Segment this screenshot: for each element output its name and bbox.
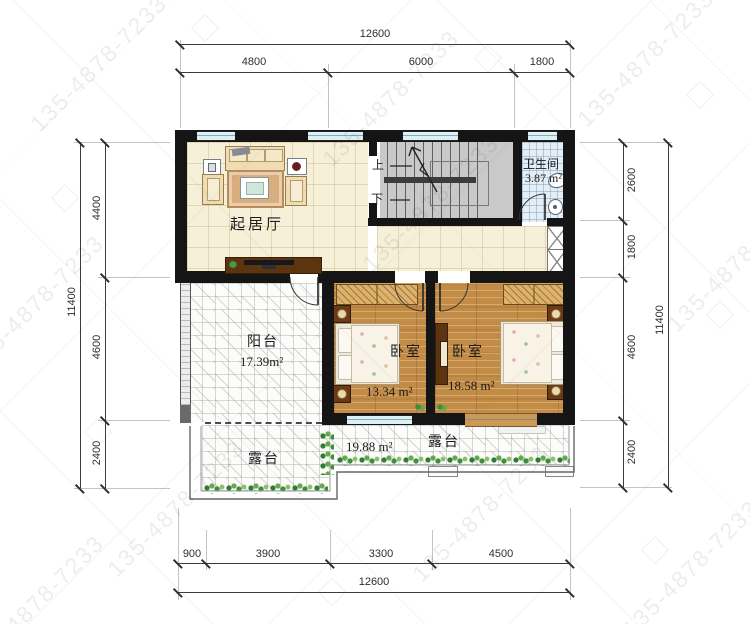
- dim-bottom-segment-0: 900: [162, 548, 222, 560]
- extension-line: [98, 420, 170, 421]
- flower-table-right: [287, 158, 307, 175]
- dimension-line-bottom-segments: [178, 563, 570, 564]
- terrace-door-step: [498, 426, 546, 434]
- bedroom-left-label: 卧室: [390, 341, 422, 361]
- dim-right-segment-2: 4600: [626, 317, 638, 377]
- terrace-left-label: 露台: [248, 448, 280, 468]
- armchair-cushion: [207, 178, 220, 201]
- dim-top-segment-1: 6000: [381, 56, 461, 68]
- window-living-left: [197, 131, 235, 141]
- tv-cabinet: [225, 257, 322, 274]
- plant: [415, 403, 425, 412]
- stairs-handrail: [384, 177, 476, 183]
- shrub-row: [337, 455, 570, 466]
- dim-right-segment-1: 1800: [626, 217, 638, 277]
- dim-left-segment-1: 4600: [91, 317, 103, 377]
- wall-between-bedrooms: [426, 283, 435, 413]
- watermark-text: 135-4878-7233: [662, 190, 750, 338]
- wardrobe-right: [503, 284, 565, 305]
- dim-left-segment-2: 2400: [91, 423, 103, 483]
- extension-line: [580, 487, 672, 488]
- armchair-cushion: [290, 180, 303, 202]
- hallway-floor: [377, 226, 563, 271]
- extension-line: [74, 142, 170, 143]
- diamond-watermark-icon: [51, 184, 79, 212]
- pillow: [338, 355, 352, 380]
- extension-line: [180, 40, 181, 128]
- bathroom-label: 卫生间: [523, 155, 559, 172]
- wall-top: [175, 130, 575, 142]
- wall-stair-bottom: [368, 218, 521, 226]
- nightstand: [333, 385, 351, 403]
- sofa: [225, 146, 285, 171]
- stairs-up-label: 上: [372, 156, 384, 173]
- table-lamp: [208, 163, 216, 172]
- bedroom-right-area-label: 18.58 m²: [448, 378, 495, 394]
- dim-right-total: 11400: [654, 290, 666, 350]
- plant: [229, 261, 237, 268]
- shrub-row: [320, 431, 334, 475]
- balcony-area-label: 17.39m²: [240, 354, 283, 370]
- dim-left-segment-0: 4400: [91, 178, 103, 238]
- terrace-area-label: 19.88 m²: [346, 439, 393, 455]
- bedroom-left-area-label: 13.34 m²: [366, 384, 413, 400]
- nightstand-lamp: [337, 389, 347, 399]
- dim-left-total: 11400: [66, 272, 78, 332]
- tv-screen: [440, 341, 448, 367]
- stairwell-opening-outline: [430, 161, 489, 206]
- bathroom-area-label: 3.87 m²: [525, 171, 562, 186]
- dimension-line-right-segments: [623, 142, 624, 487]
- terrace-right-label: 露台: [428, 431, 460, 451]
- dim-top-segment-0: 4800: [214, 56, 294, 68]
- dim-bottom-segment-3: 4500: [471, 548, 531, 560]
- dim-top-total: 12600: [330, 28, 420, 40]
- dim-right-segment-3: 2400: [626, 422, 638, 482]
- parapet-pier: [545, 466, 574, 477]
- toilet-drain: [553, 205, 557, 209]
- window-bathroom: [528, 131, 557, 141]
- dimension-line-right-total: [668, 142, 669, 487]
- flower-icon: [292, 162, 301, 171]
- diamond-watermark-icon: [686, 81, 714, 109]
- balcony-railing-post: [180, 405, 191, 423]
- balcony-label: 阳台: [247, 331, 279, 351]
- wardrobe-left: [336, 284, 418, 305]
- nightstand-lamp: [551, 386, 561, 396]
- balcony-railing: [180, 283, 191, 423]
- dimension-line-left-segments: [105, 142, 106, 488]
- balcony-terrace-dashed-line: [205, 422, 322, 424]
- wall-bedroom-left-west: [322, 271, 334, 425]
- diamond-watermark-icon: [191, 14, 219, 42]
- dim-right-segment-0: 2600: [626, 150, 638, 210]
- tv-stand-base: [262, 265, 276, 269]
- floor-plan-canvas: 起居厅 卫生间 3.87 m² 阳台 17.39m² 卧室 13.34 m² 卧…: [0, 0, 750, 624]
- dim-bottom-segment-1: 3900: [238, 548, 298, 560]
- armchair-left: [202, 174, 224, 205]
- bed-right: [500, 321, 565, 385]
- wall-left: [175, 130, 187, 283]
- wall-stair-bathroom: [513, 142, 522, 226]
- watermark-text: 135-4878-7233: [617, 495, 750, 624]
- wall-living-stair-column-a: [369, 142, 377, 156]
- nightstand-lamp: [337, 309, 347, 319]
- watermark-text: 135-4878-7233: [572, 0, 720, 132]
- diamond-watermark-icon: [706, 301, 734, 329]
- watermark-text: 135-4878-7233: [25, 0, 173, 137]
- dimension-line-bottom-total: [178, 592, 570, 593]
- dim-bottom-total: 12600: [334, 576, 414, 588]
- window-living-right: [308, 131, 363, 141]
- wall-bathroom-bottom-east: [547, 218, 563, 226]
- terrace-door-bedroom-right: [465, 413, 537, 427]
- stairs-down-label: 下: [371, 190, 383, 207]
- nightstand-lamp: [551, 309, 561, 319]
- dim-bottom-segment-2: 3300: [351, 548, 411, 560]
- diamond-watermark-icon: [474, 44, 502, 72]
- extension-line: [98, 277, 170, 278]
- tv-stand: [435, 323, 448, 385]
- watermark-text: 135-4878-7233: [0, 530, 110, 624]
- sofa-cushion: [265, 149, 283, 162]
- pillow: [338, 328, 352, 353]
- shrub-row: [204, 483, 328, 494]
- living-room-label: 起居厅: [230, 213, 284, 234]
- duvet: [503, 323, 552, 383]
- balcony-floor: [189, 283, 322, 422]
- parapet-pier: [428, 466, 458, 477]
- pillow: [550, 326, 564, 352]
- dim-top-segment-2: 1800: [502, 56, 582, 68]
- coffee-table-top: [246, 182, 264, 195]
- side-table-left: [203, 159, 221, 175]
- window-bedroom-left: [347, 415, 412, 424]
- plant: [437, 403, 447, 412]
- toilet: [548, 199, 563, 215]
- pillow: [550, 354, 564, 380]
- coffee-table: [240, 177, 269, 199]
- nightstand: [333, 305, 351, 323]
- dimension-line-left-total: [80, 142, 81, 488]
- wall-hall-bedrooms-a: [334, 271, 395, 283]
- extension-line: [580, 142, 672, 143]
- extension-line: [570, 508, 571, 600]
- diamond-watermark-icon: [641, 536, 669, 564]
- wall-hall-bedrooms-b: [425, 271, 438, 283]
- wall-right: [563, 130, 575, 425]
- dimension-line-top-total: [180, 44, 570, 45]
- extension-line: [570, 40, 571, 128]
- wall-hall-bedrooms-c: [470, 271, 563, 283]
- armchair-right: [285, 176, 307, 206]
- bedroom-right-label: 卧室: [452, 341, 484, 361]
- window-stairwell: [403, 131, 458, 141]
- extension-line: [74, 488, 170, 489]
